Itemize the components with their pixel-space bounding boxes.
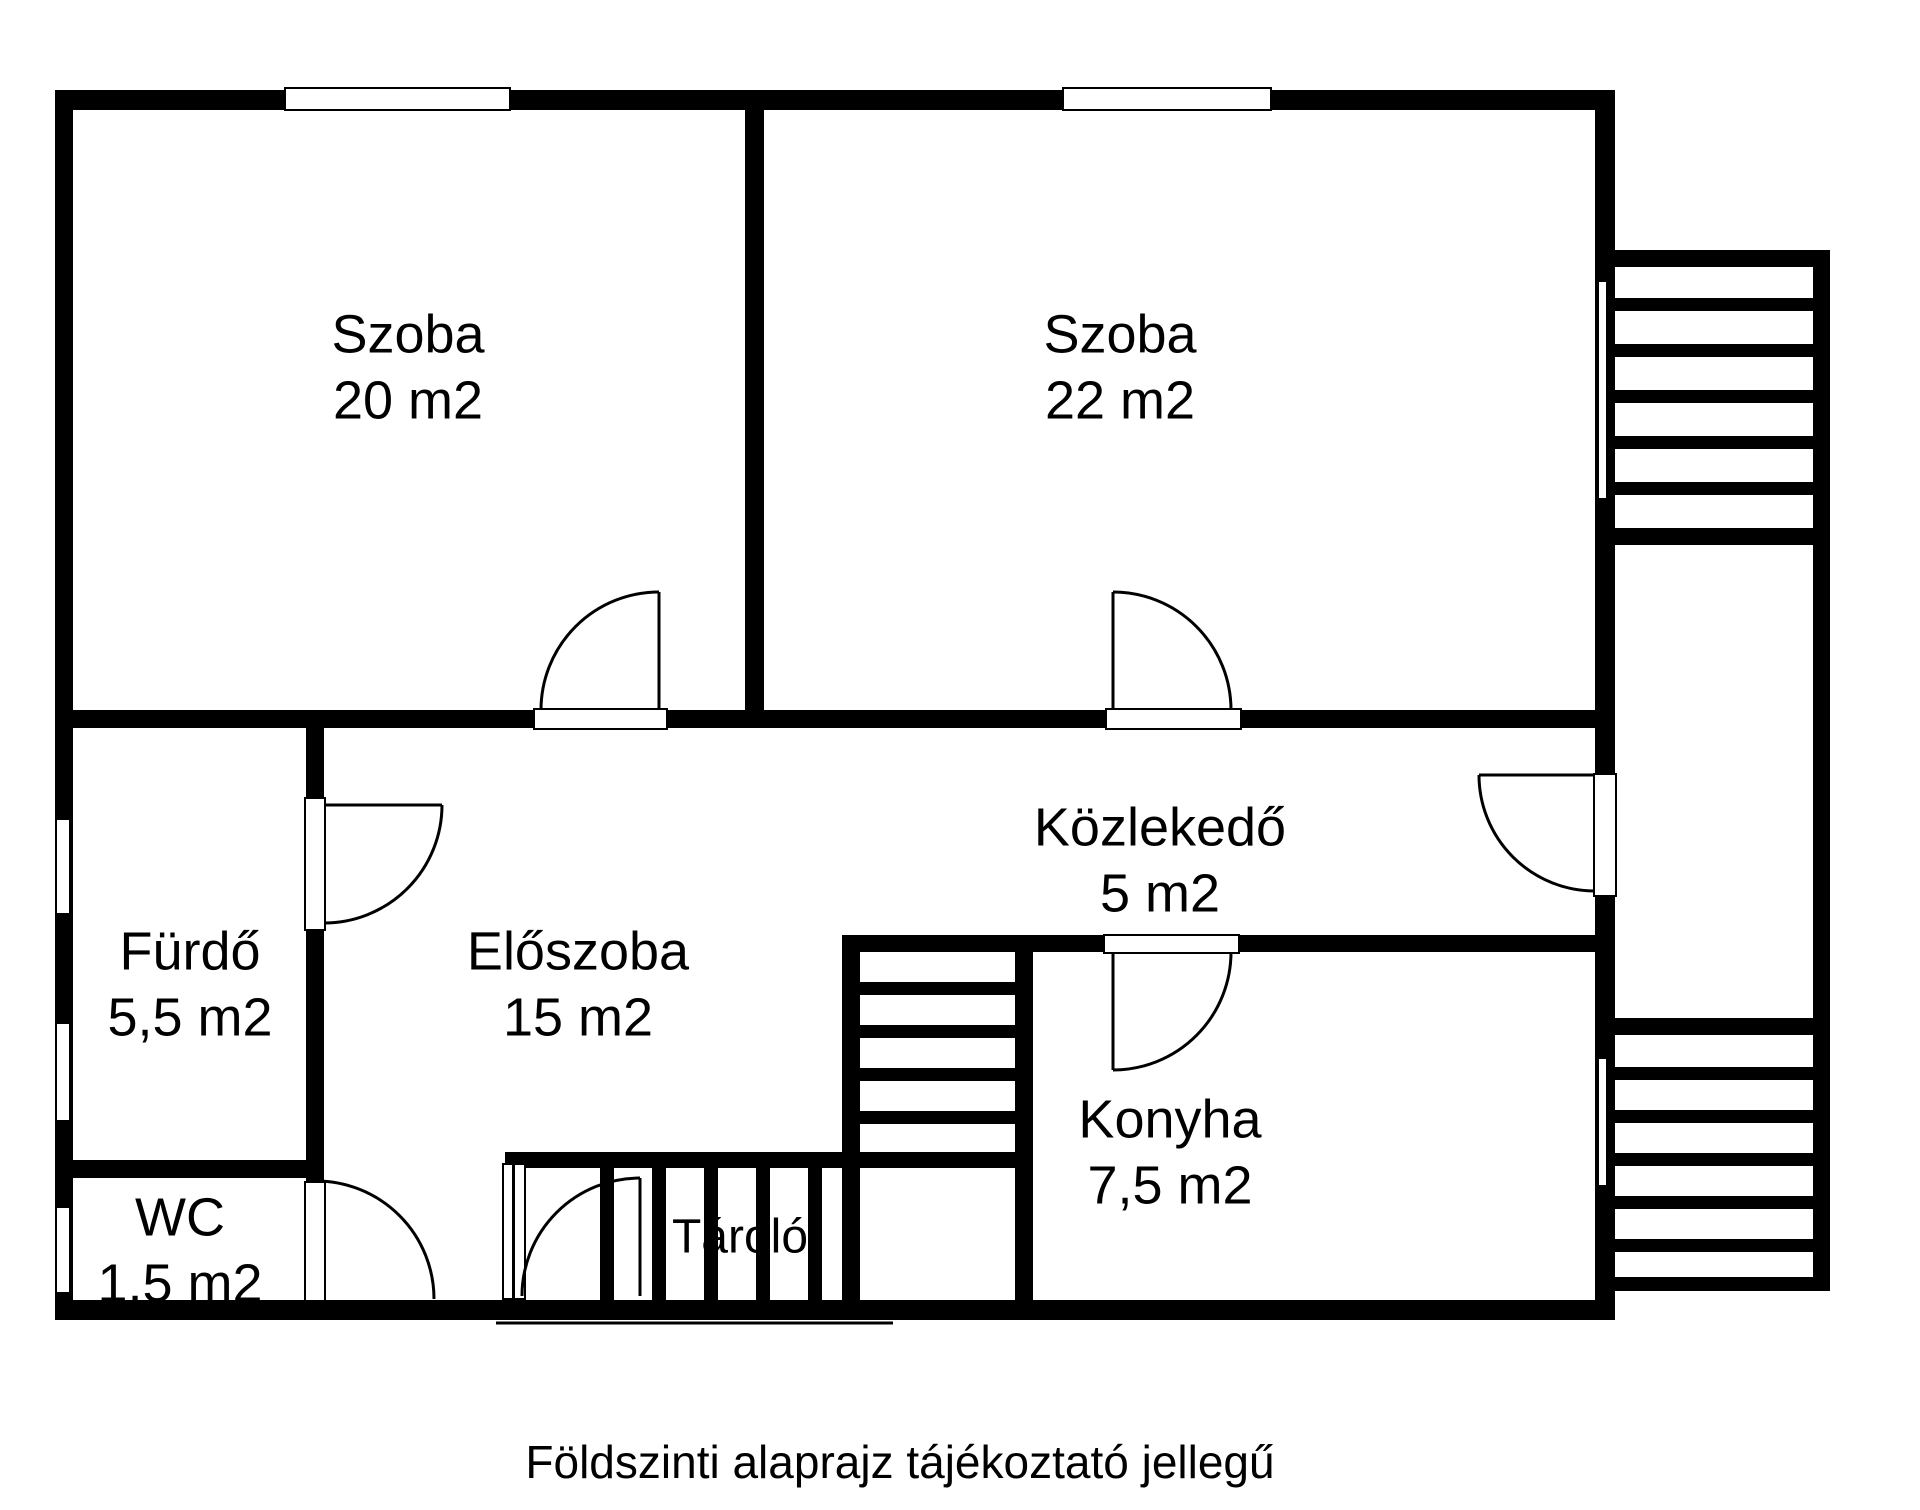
door-symbols-layer (0, 0, 1920, 1510)
door-swing-arc-szoba1 (541, 592, 659, 710)
door-swing-arc-wc (316, 1181, 434, 1299)
door-swing-arc-furdo (324, 805, 442, 923)
door-swing-arc-szoba2 (1113, 592, 1231, 710)
floor-plan: Szoba 20 m2 Szoba 22 m2 Közlekedő 5 m2 F… (0, 0, 1920, 1510)
door-swing-arc-exterior (1479, 775, 1595, 891)
door-swing-arc-tarolo (522, 1178, 640, 1296)
door-swing-arc-konyha (1113, 952, 1231, 1070)
